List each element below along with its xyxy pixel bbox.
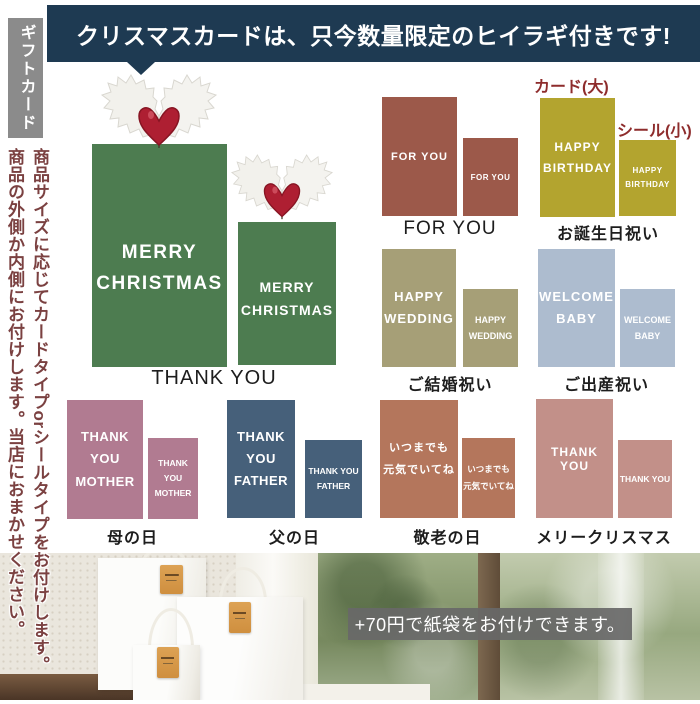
side-note-line1: 商品サイズに応じてカードタイプorシールタイプをお付けします。 xyxy=(27,148,52,704)
card-text: WELCOME xyxy=(539,286,614,308)
card-text: いつまでも xyxy=(467,461,510,478)
holly-decoration-icon xyxy=(224,146,340,222)
card-for-you-small: FOR YOU xyxy=(463,138,518,216)
card-text: MOTHER xyxy=(155,486,192,501)
card-text: BIRTHDAY xyxy=(625,178,670,192)
annotation-seal-small: シール(小) xyxy=(617,117,700,141)
card-text: BIRTHDAY xyxy=(543,158,612,178)
card-text: HAPPY xyxy=(632,164,662,178)
card-thank-you-father-large: THANK YOU FATHER xyxy=(227,400,295,518)
card-thank-you-mother-small: THANK YOU MOTHER xyxy=(148,438,198,519)
top-banner: クリスマスカードは、只今数量限定のヒイラギ付きです! xyxy=(47,5,700,62)
card-welcome-baby-small: WELCOME BABY xyxy=(620,289,675,367)
card-thank-you-pink-small: THANK YOU xyxy=(618,440,672,518)
card-text: CHRISTMAS xyxy=(241,299,333,321)
section-label-father: 父の日 xyxy=(227,524,362,548)
card-text: CHRISTMAS xyxy=(96,269,222,299)
section-label-mother: 母の日 xyxy=(67,524,198,548)
photo-window-sill xyxy=(300,684,430,700)
card-text: FATHER xyxy=(234,470,288,492)
paper-bag-caption: +70円で紙袋をお付けできます。 xyxy=(348,608,632,640)
card-text: MERRY xyxy=(122,238,197,268)
card-text: WEDDING xyxy=(384,308,454,330)
card-text: THANK YOU xyxy=(227,426,295,470)
card-text: THANK YOU xyxy=(148,456,198,487)
card-text: MOTHER xyxy=(75,471,134,493)
section-label-wedding: ご結婚祝い xyxy=(382,371,518,395)
card-text: HAPPY xyxy=(554,137,600,157)
card-text: HAPPY xyxy=(394,286,444,308)
gift-card-tab: ギフトカード xyxy=(8,18,43,138)
card-keirou-large: いつまでも 元気でいてね xyxy=(380,400,458,518)
card-text: HAPPY xyxy=(475,312,506,328)
card-text: いつまでも xyxy=(389,437,449,459)
card-happy-wedding-large: HAPPY WEDDING xyxy=(382,249,456,367)
card-text: FOR YOU xyxy=(471,173,511,182)
bag-tag xyxy=(229,602,251,633)
card-text: THANK YOU xyxy=(620,474,670,484)
card-text: 元気でいてね xyxy=(383,459,455,481)
bag-tag xyxy=(160,565,183,594)
side-note: 商品サイズに応じてカードタイプorシールタイプをお付けします。 商品の外側か内側… xyxy=(0,148,52,704)
gift-card-tab-label: ギフトカード xyxy=(14,24,38,132)
card-text: 元気でいてね xyxy=(463,478,514,495)
paper-bag-photo: +70円で紙袋をお付けできます。 xyxy=(0,553,700,700)
banner-text: クリスマスカードは、只今数量限定のヒイラギ付きです! xyxy=(76,17,671,51)
section-label-birthday: お誕生日祝い xyxy=(540,220,676,244)
card-merry-christmas-large: MERRY CHRISTMAS xyxy=(92,144,227,367)
card-happy-birthday-small: HAPPY BIRTHDAY xyxy=(619,140,676,216)
section-label-baby: ご出産祝い xyxy=(538,371,675,395)
card-text: WEDDING xyxy=(469,328,513,344)
section-label-keirou: 敬老の日 xyxy=(380,524,515,548)
section-label-for-you: FOR YOU xyxy=(382,218,518,240)
holly-decoration-icon xyxy=(93,68,225,148)
caption-text: +70円で紙袋をお付けできます。 xyxy=(355,611,626,637)
card-text: BABY xyxy=(635,328,661,344)
card-text: FATHER xyxy=(317,479,350,494)
card-for-you-large: FOR YOU xyxy=(382,97,457,216)
card-text: MERRY xyxy=(259,276,314,298)
card-thank-you-mother-large: THANK YOU MOTHER xyxy=(67,400,143,519)
section-label-merry-christmas: メリークリスマス xyxy=(536,524,672,548)
bag-tag xyxy=(157,647,179,678)
card-text: THANK YOU xyxy=(308,464,358,479)
section-label-thank-you: THANK YOU xyxy=(92,367,336,390)
card-text: THANK YOU xyxy=(67,426,143,470)
card-merry-christmas-small: MERRY CHRISTMAS xyxy=(238,222,336,365)
card-text: FOR YOU xyxy=(391,151,448,163)
annotation-card-large: カード(大) xyxy=(534,73,626,97)
card-keirou-small: いつまでも 元気でいてね xyxy=(462,438,515,518)
card-thank-you-pink-large: THANK YOU xyxy=(536,399,613,518)
banner-pointer-triangle-icon xyxy=(127,62,155,75)
card-thank-you-father-small: THANK YOU FATHER xyxy=(305,440,362,518)
card-happy-birthday-large: HAPPY BIRTHDAY xyxy=(540,98,615,217)
card-happy-wedding-small: HAPPY WEDDING xyxy=(463,289,518,367)
card-text: BABY xyxy=(556,308,597,330)
card-welcome-baby-large: WELCOME BABY xyxy=(538,249,615,367)
card-text: THANK YOU xyxy=(536,445,613,473)
card-text: WELCOME xyxy=(624,312,671,328)
side-note-line2: 商品の外側か内側にお付けします。当店におまかせください。 xyxy=(2,148,27,704)
